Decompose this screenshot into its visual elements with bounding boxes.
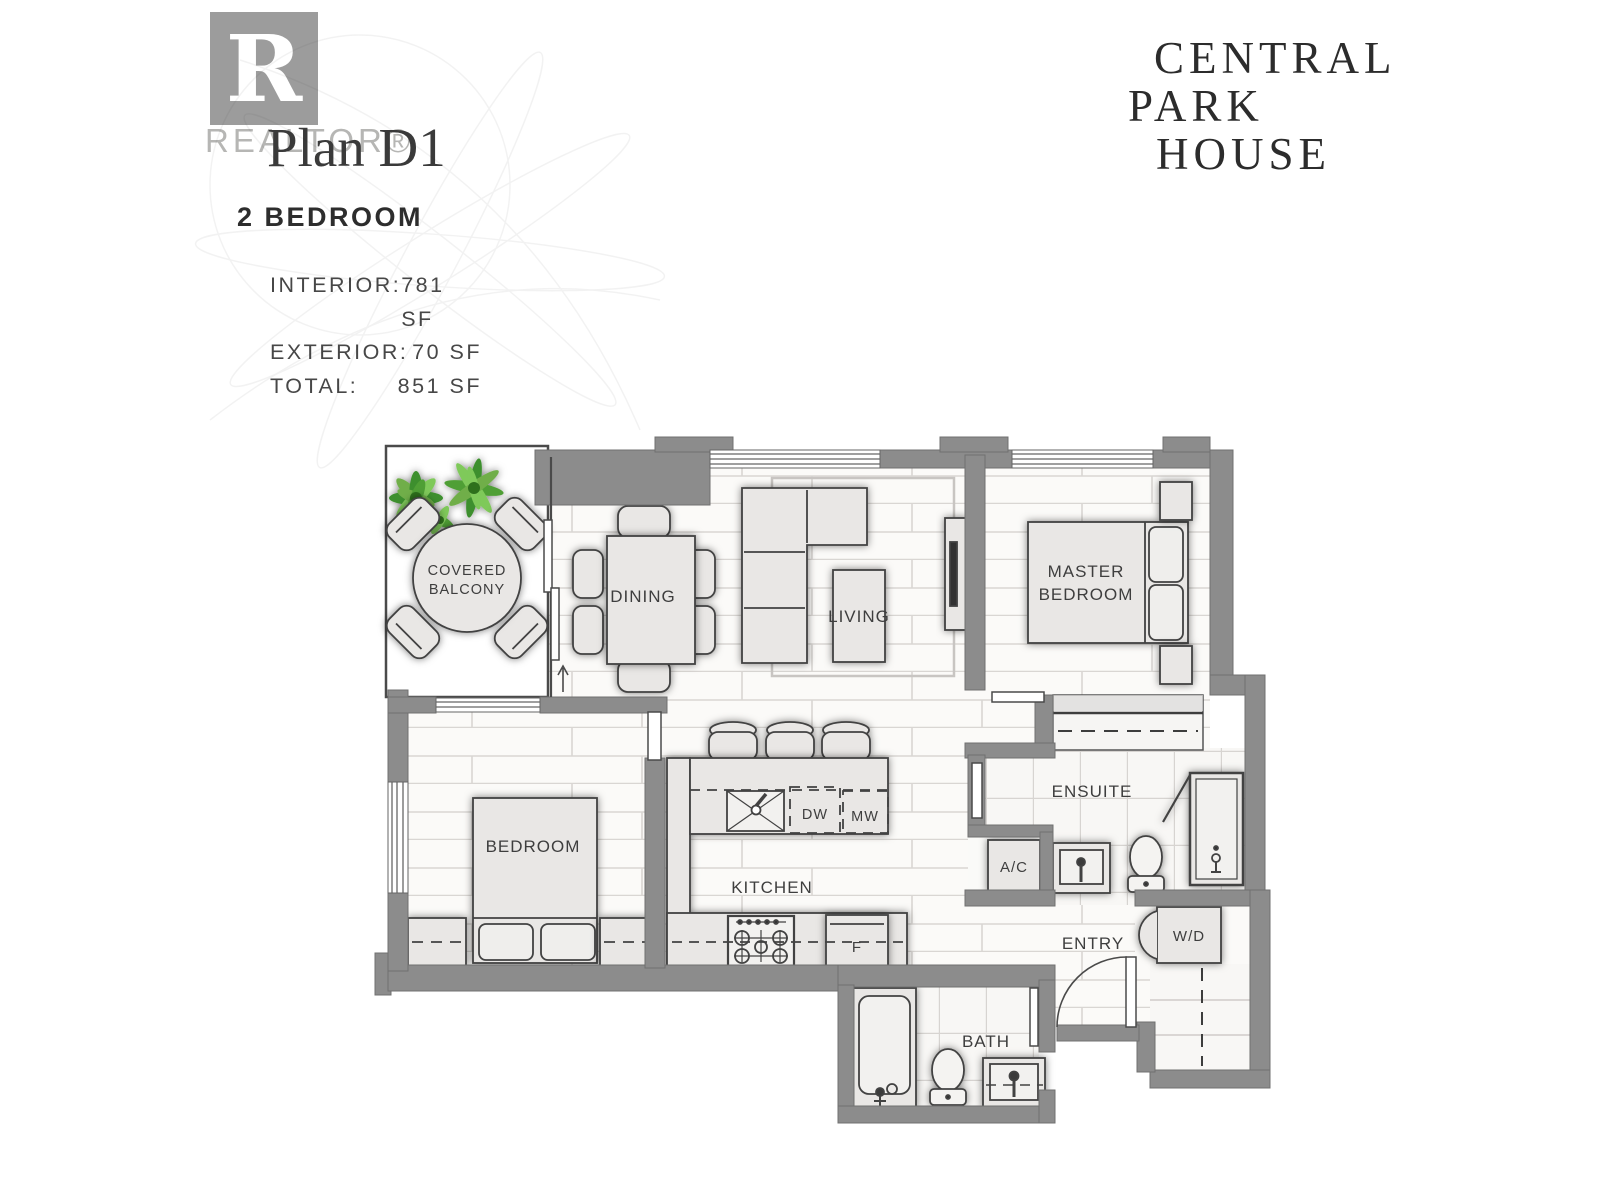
room-label-master-2: BEDROOM	[1039, 585, 1134, 604]
room-label-ensuite: ENSUITE	[1052, 782, 1133, 801]
appliance-label-wd: W/D	[1173, 928, 1205, 945]
master-bed	[1028, 522, 1188, 643]
room-label-balcony: BALCONY	[429, 582, 505, 598]
appliance-label-mw: MW	[851, 809, 879, 825]
ensuite-vanity	[1053, 843, 1110, 893]
room-label-kitchen: KITCHEN	[731, 878, 813, 897]
appliance-label-dw: DW	[802, 807, 828, 823]
appliance-label-f: F	[852, 939, 862, 956]
ensuite-door	[972, 763, 982, 818]
bed	[473, 798, 597, 963]
ensuite-toilet	[1128, 836, 1164, 892]
room-label-master-1: MASTER	[1048, 562, 1125, 581]
bath-pocket-door	[1030, 988, 1038, 1046]
room-label-covered: COVERED	[428, 563, 507, 579]
bathtub	[853, 988, 916, 1108]
room-label-bedroom: BEDROOM	[486, 837, 581, 856]
bath-toilet	[930, 1049, 966, 1105]
window-master	[1012, 450, 1153, 468]
entry-closet-floor	[1150, 962, 1250, 1072]
bedroom-door	[648, 712, 661, 760]
master-door	[992, 692, 1044, 702]
room-label-bath: BATH	[962, 1032, 1010, 1051]
room-label-entry: ENTRY	[1062, 934, 1124, 953]
floor-plan: COVERED BALCONY DINING LIVING MASTER BED…	[0, 0, 1600, 1200]
room-label-living: LIVING	[828, 607, 890, 626]
entry-door-panel	[1126, 957, 1136, 1027]
master-closet	[1053, 695, 1203, 750]
bath-vanity	[983, 1058, 1045, 1108]
kitchen-sink	[727, 791, 784, 831]
window-balcony-bedroom	[436, 698, 540, 712]
room-label-dining: DINING	[610, 587, 676, 606]
appliance-label-ac: A/C	[1000, 859, 1028, 876]
window-living	[710, 450, 880, 468]
kitchen-stool	[709, 722, 870, 760]
watermark-foliage	[194, 35, 666, 480]
tv-console	[945, 518, 967, 630]
window-bedroom	[388, 782, 408, 893]
